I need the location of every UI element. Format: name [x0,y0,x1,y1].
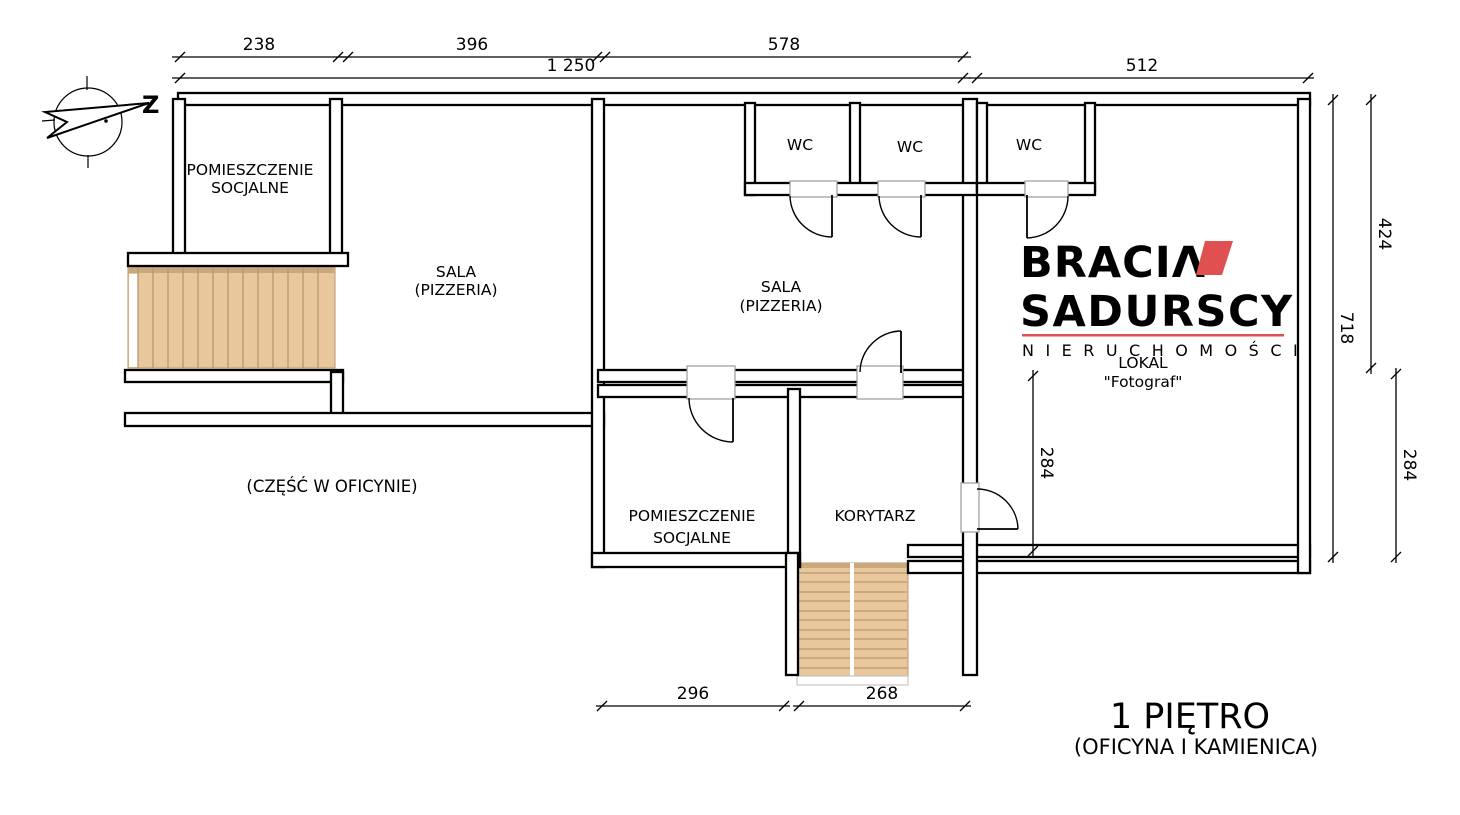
svg-text:284: 284 [1036,447,1056,479]
stairs-left [128,266,335,368]
dim-284-right: 284 [1391,368,1419,563]
plan-title: 1 PIĘTRO (OFICYNA I KAMIENICA) [1074,697,1318,759]
lokal-door-frame [961,483,979,532]
ps2-door-frame [687,366,735,399]
svg-text:238: 238 [243,35,275,55]
floorplan-page: Z 238 396 578 1 250 [0,0,1460,815]
logo-tagline: N I E R U C H O M O Ś C I [1022,341,1301,360]
label-wc1: WC [787,136,813,154]
svg-text:396: 396 [456,35,488,55]
dim-718: 718 [1328,94,1356,563]
dim-512: 512 [969,56,1314,83]
title-sub: (OFICYNA I KAMIENICA) [1074,735,1318,759]
label-sala1-line2: (PIZZERIA) [415,281,498,299]
svg-text:268: 268 [866,684,898,704]
compass: Z [42,76,159,168]
dim-424: 424 [1366,94,1394,374]
dim-1250: 1 250 [172,56,971,83]
stairs-bottom [797,563,908,685]
doors [687,181,1068,532]
dim-284-inner: 284 [1028,370,1056,557]
label-wc2: WC [897,138,923,156]
svg-text:1 250: 1 250 [547,56,596,76]
wc2-door-frame [878,181,925,197]
label-sala2-line2: (PIZZERIA) [740,297,823,315]
brand-logo: BRACIΛ SADURSCY N I E R U C H O M O Ś C … [1020,238,1301,360]
svg-text:512: 512 [1126,56,1158,76]
logo-sadurscy: SADURSCY [1020,287,1294,337]
floorplan-svg: Z 238 396 578 1 250 [0,0,1460,815]
svg-text:424: 424 [1374,218,1394,250]
dim-578: 578 [597,35,971,62]
label-ps1-line2: SOCJALNE [211,179,289,197]
svg-text:284: 284 [1399,449,1419,481]
svg-text:296: 296 [677,684,709,704]
label-oficyna-note: (CZĘŚĆ W OFICYNIE) [246,477,417,496]
label-ps1-line1: POMIESZCZENIE [187,161,314,179]
label-ps2-line2: SOCJALNE [653,529,731,547]
label-ps2-line1: POMIESZCZENIE [629,507,756,525]
dim-268: 268 [793,684,971,711]
label-lokal-line2: "Fotograf" [1104,373,1183,391]
logo-bracia: BRACIΛ [1020,238,1206,288]
label-korytarz: KORYTARZ [834,507,915,525]
sala2-door-frame [857,366,903,399]
title-main: 1 PIĘTRO [1110,697,1270,737]
compass-label: Z [142,91,159,119]
label-wc3: WC [1016,136,1042,154]
svg-text:578: 578 [768,35,800,55]
label-sala2-line1: SALA [761,278,802,296]
wc3-door-frame [1025,181,1068,197]
dim-296: 296 [596,684,790,711]
logo-rule [1022,334,1284,337]
dim-238: 238 [172,35,346,62]
label-sala1-line1: SALA [436,263,477,281]
wc1-door-frame [790,181,837,197]
svg-text:718: 718 [1336,312,1356,344]
